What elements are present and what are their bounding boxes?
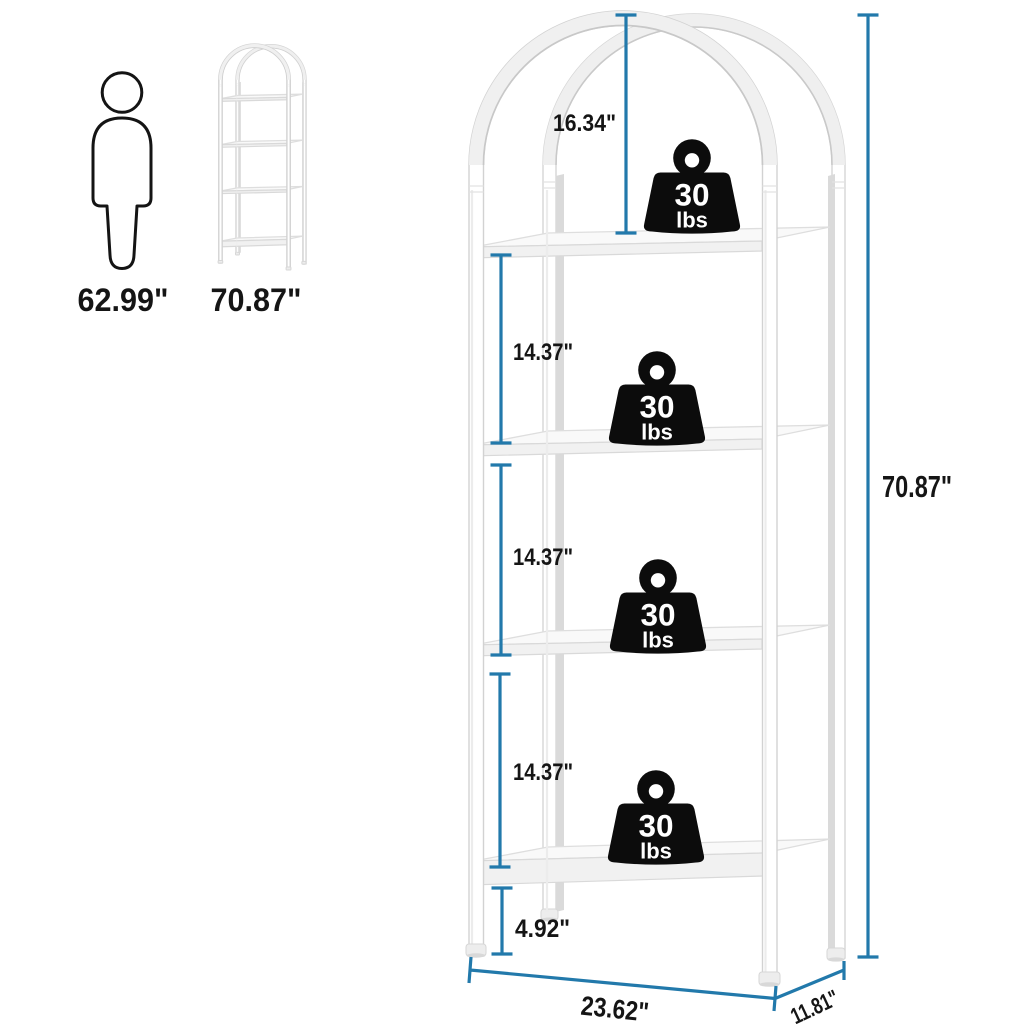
- svg-text:14.37": 14.37": [513, 759, 573, 786]
- svg-text:70.87": 70.87": [882, 469, 952, 504]
- svg-text:4.92": 4.92": [515, 915, 570, 943]
- svg-text:14.37": 14.37": [513, 544, 573, 571]
- svg-text:16.34": 16.34": [553, 110, 616, 137]
- svg-text:23.62": 23.62": [580, 991, 651, 1024]
- svg-text:14.37": 14.37": [513, 339, 573, 366]
- svg-text:62.99": 62.99": [78, 282, 169, 318]
- svg-text:70.87": 70.87": [211, 282, 302, 318]
